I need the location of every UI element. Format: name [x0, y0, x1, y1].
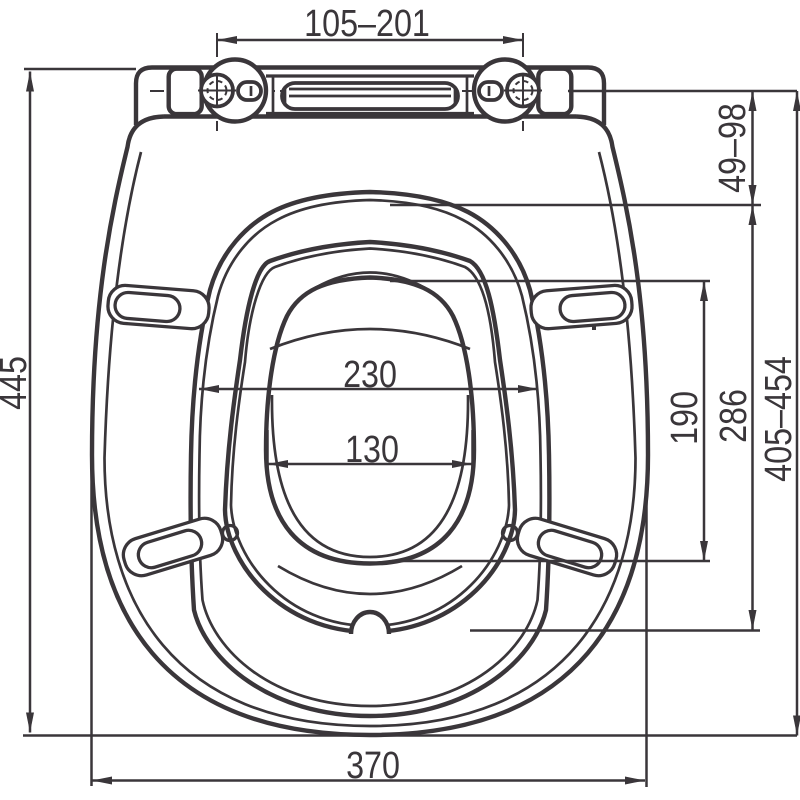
- svg-text:370: 370: [346, 745, 400, 787]
- svg-text:405–454: 405–454: [758, 356, 800, 482]
- svg-text:445: 445: [0, 356, 35, 410]
- svg-text:230: 230: [343, 354, 397, 396]
- svg-text:49–98: 49–98: [712, 103, 754, 193]
- svg-text:286: 286: [713, 389, 755, 443]
- svg-text:190: 190: [664, 391, 706, 445]
- svg-text:130: 130: [345, 429, 399, 471]
- svg-text:105–201: 105–201: [304, 3, 430, 45]
